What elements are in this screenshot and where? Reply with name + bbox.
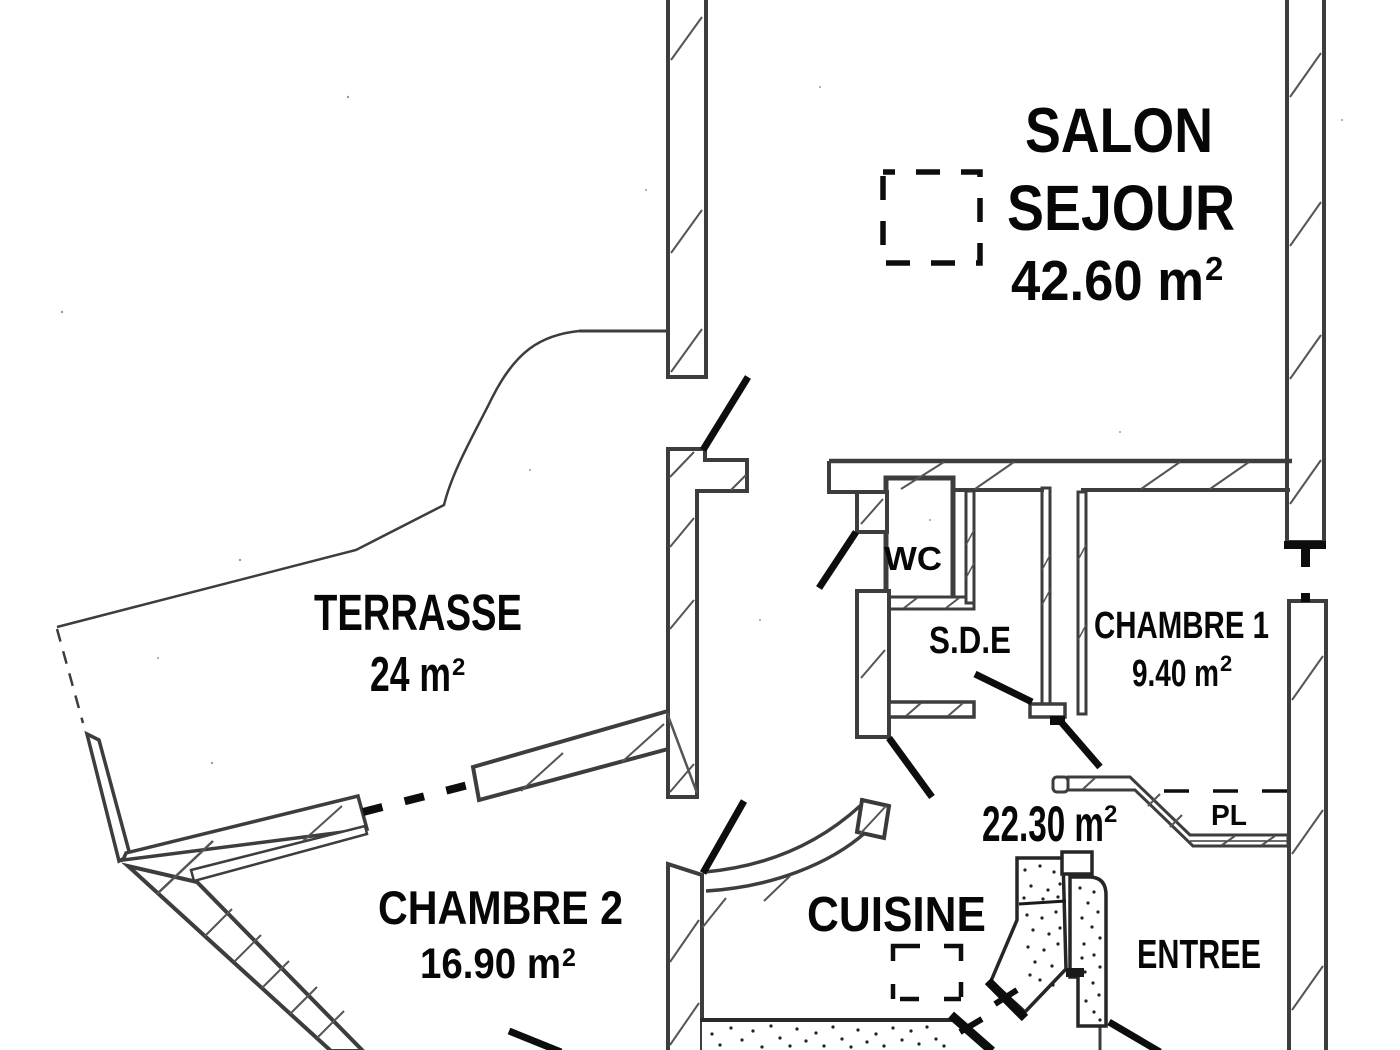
svg-text:2: 2 <box>562 944 576 972</box>
svg-text:2: 2 <box>1205 250 1223 287</box>
svg-text:S.D.E: S.D.E <box>929 620 1011 662</box>
svg-text:2: 2 <box>1104 801 1117 828</box>
svg-text:CUISINE: CUISINE <box>807 888 986 942</box>
svg-text:PL: PL <box>1211 800 1247 832</box>
svg-text:CHAMBRE 2: CHAMBRE 2 <box>378 881 623 934</box>
svg-text:2: 2 <box>1220 651 1232 676</box>
svg-text:22.30 m: 22.30 m <box>982 796 1104 852</box>
svg-text:24 m: 24 m <box>370 648 451 702</box>
svg-text:2: 2 <box>452 654 465 681</box>
svg-text:CHAMBRE 1: CHAMBRE 1 <box>1094 605 1269 647</box>
svg-text:WC: WC <box>884 540 942 577</box>
svg-text:SEJOUR: SEJOUR <box>1007 172 1235 244</box>
svg-text:42.60 m: 42.60 m <box>1011 249 1204 313</box>
svg-text:SALON: SALON <box>1025 96 1213 166</box>
svg-text:16.90 m: 16.90 m <box>420 940 561 988</box>
svg-text:9.40 m: 9.40 m <box>1132 653 1219 695</box>
svg-text:ENTREE: ENTREE <box>1137 931 1261 977</box>
svg-text:TERRASSE: TERRASSE <box>314 584 522 641</box>
